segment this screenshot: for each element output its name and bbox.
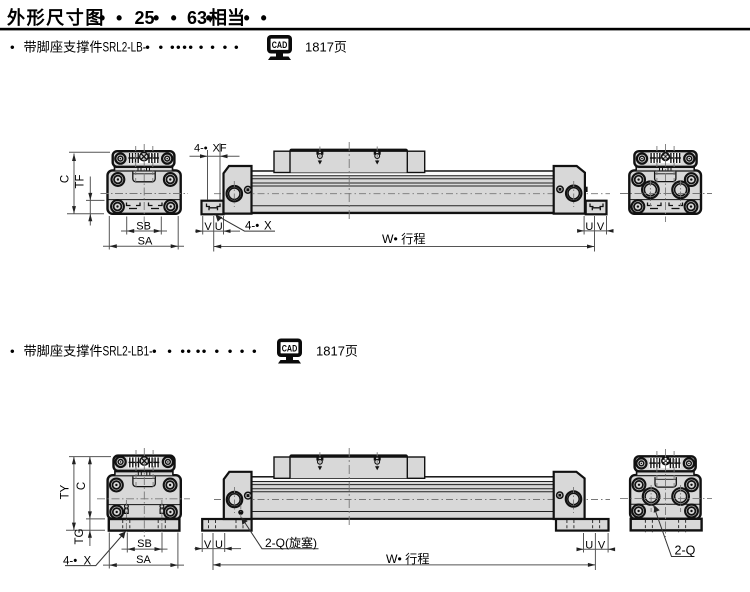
svg-text:CAD: CAD	[282, 344, 298, 354]
svg-text:2-Q(旋塞): 2-Q(旋塞)	[265, 535, 317, 550]
svg-text:W• 行程: W• 行程	[382, 231, 426, 246]
svg-text:U: U	[585, 539, 593, 551]
svg-text:V: V	[204, 221, 212, 233]
svg-text:••••••••••: ••••••••••	[145, 40, 239, 55]
svg-text:2-Q: 2-Q	[675, 544, 696, 558]
svg-text:V: V	[204, 539, 212, 551]
svg-text:X: X	[84, 556, 92, 568]
svg-text:•带脚座支撑件: •带脚座支撑件	[10, 40, 103, 55]
svg-text:1817页: 1817页	[305, 40, 347, 55]
svg-text:XF: XF	[213, 143, 227, 155]
svg-text:CAD: CAD	[272, 40, 288, 50]
svg-text:SA: SA	[138, 236, 153, 248]
svg-text:V: V	[597, 221, 605, 233]
svg-text:W• 行程: W• 行程	[386, 551, 430, 566]
svg-text:V: V	[598, 539, 606, 551]
svg-text:SB: SB	[137, 538, 152, 550]
svg-text:SB: SB	[136, 220, 151, 232]
svg-text:SRL2-LB-: SRL2-LB-	[103, 39, 147, 55]
svg-text:4-•: 4-•	[245, 220, 259, 232]
svg-text:C: C	[76, 482, 88, 490]
svg-text:U: U	[215, 539, 223, 551]
svg-text:••••••••••: ••••••••••	[152, 344, 257, 359]
svg-text:TF: TF	[75, 174, 87, 188]
svg-text:•带脚座支撑件: •带脚座支撑件	[10, 344, 103, 359]
svg-text:SRL2-LB1-: SRL2-LB1-	[103, 343, 153, 359]
svg-text:1817页: 1817页	[316, 344, 358, 359]
svg-text:X: X	[264, 220, 272, 232]
svg-text:SA: SA	[136, 554, 151, 566]
svg-text:4-•: 4-•	[63, 556, 77, 568]
svg-text:U: U	[585, 221, 593, 233]
svg-text:U: U	[215, 221, 223, 233]
svg-text:C: C	[60, 175, 72, 183]
svg-text:4-•: 4-•	[194, 143, 208, 155]
svg-text:TG: TG	[74, 528, 86, 544]
svg-text:外形尺寸图••25••63•相当••: 外形尺寸图••25••63•相当••	[7, 7, 267, 28]
svg-text:TY: TY	[60, 484, 72, 499]
